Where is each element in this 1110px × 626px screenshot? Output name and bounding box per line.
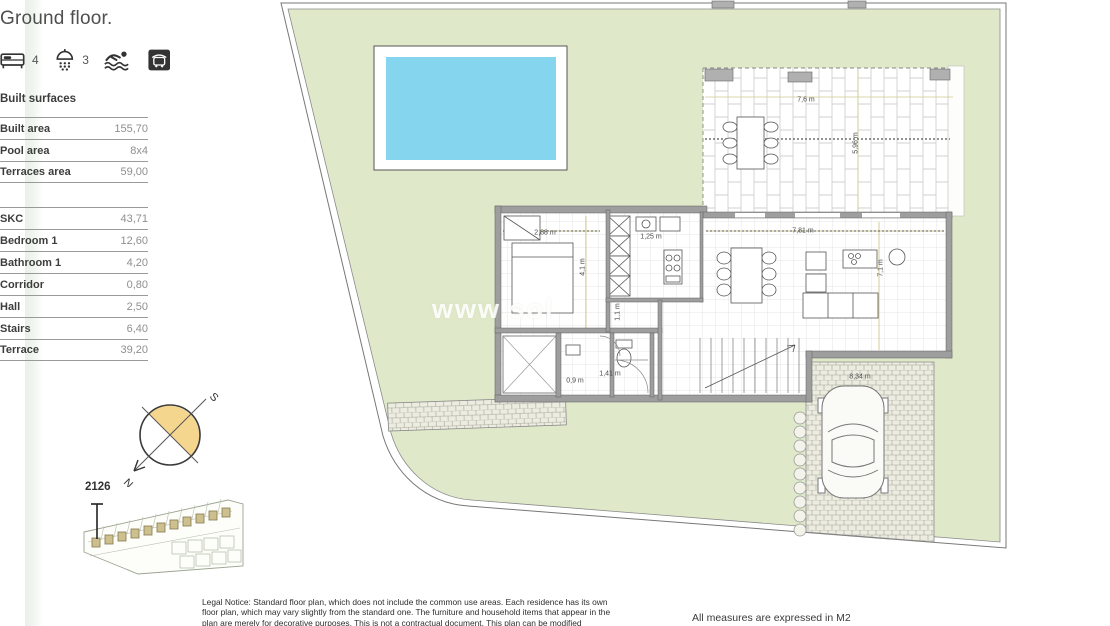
compass-south-label: S: [207, 391, 221, 405]
surface-value: 2,50: [127, 301, 148, 313]
surface-row: Terrace39,20: [0, 339, 148, 361]
windows: [735, 213, 900, 218]
surfaces-table-main: Built area155,70 Pool area8x4 Terraces a…: [0, 117, 148, 183]
driveway: [794, 362, 934, 542]
terrace-dining-set: [723, 117, 778, 169]
built-surfaces-heading: Built surfaces: [0, 93, 76, 105]
surface-value: 155,70: [114, 123, 148, 135]
dim-terrace-depth: 5,96 m: [853, 132, 860, 153]
dim-bedroom-depth: 4,1 m: [580, 258, 587, 276]
watermark: www.sol: [432, 294, 555, 325]
dim-bedroom-width: 2,88 m: [534, 230, 555, 237]
surface-label: Terrace: [0, 344, 39, 356]
patio-lightwell: [503, 336, 556, 393]
surface-label: SKC: [0, 213, 23, 225]
surface-row: Corridor0,80: [0, 273, 148, 295]
dim-path-width: 0,9 m: [566, 378, 584, 385]
page-title: Ground floor.: [0, 8, 112, 30]
wardrobe: [608, 216, 630, 296]
terrace: [703, 66, 964, 216]
surface-value: 12,60: [120, 235, 148, 247]
unit-number: 2126: [85, 481, 111, 493]
car: [818, 386, 888, 498]
pool-water: [386, 57, 556, 160]
surface-row: Terraces area59,00: [0, 161, 148, 183]
garage-icon: [148, 47, 170, 73]
surface-row: Stairs6,40: [0, 317, 148, 339]
surface-value: 0,80: [127, 279, 148, 291]
compass-north-label: N: [121, 477, 135, 487]
measures-note: All measures are expressed in M2: [692, 612, 851, 626]
surface-label: Hall: [0, 301, 20, 313]
stepping-stones: [794, 412, 806, 536]
surface-row: Pool area8x4: [0, 139, 148, 161]
pool-swimmer-icon: [104, 47, 131, 73]
surface-row: Bedroom 112,60: [0, 229, 148, 251]
surface-label: Stairs: [0, 323, 31, 335]
dim-living-depth: 7,1 m: [878, 259, 885, 277]
feature-icons: 4 3: [0, 46, 170, 73]
dim-terrace-width: 7,6 m: [797, 97, 815, 104]
surface-value: 59,00: [120, 166, 148, 178]
dim-kitchen-width: 1,25 m: [640, 234, 661, 241]
compass-rose: S N: [118, 383, 222, 492]
development-sitemap: [80, 494, 252, 599]
surface-label: Bedroom 1: [0, 235, 57, 247]
legal-notice: Legal Notice: Standard floor plan, which…: [202, 597, 626, 626]
surface-value: 43,71: [120, 213, 148, 225]
dining-set: [717, 248, 776, 303]
floorplan-page: 7,6 m 5,96 m 2,88 m 1,25 m 4,1 m 7,81 m …: [0, 0, 1110, 626]
dim-driveway-length: 8,34 m: [849, 374, 870, 381]
surface-label: Pool area: [0, 145, 50, 157]
surface-row: SKC43,71: [0, 207, 148, 229]
surface-value: 39,20: [120, 344, 148, 356]
dim-living-width: 7,81 m: [792, 228, 813, 235]
surface-value: 8x4: [130, 145, 148, 157]
dim-hall-width: 1,41 m: [599, 371, 620, 378]
bathrooms-count: 3: [82, 53, 89, 67]
surface-label: Bathroom 1: [0, 257, 61, 269]
shower-icon: [54, 46, 76, 73]
surfaces-table-rooms: SKC43,71 Bedroom 112,60 Bathroom 14,20 C…: [0, 207, 148, 361]
surface-label: Terraces area: [0, 166, 71, 178]
bed-icon: [0, 49, 25, 71]
dim-hall-depth: 1,1 m: [615, 303, 622, 321]
surface-row: Built area155,70: [0, 117, 148, 139]
surface-row: Hall2,50: [0, 295, 148, 317]
surface-label: Corridor: [0, 279, 44, 291]
surface-row: Bathroom 14,20: [0, 251, 148, 273]
bedrooms-count: 4: [32, 53, 39, 67]
surface-value: 4,20: [127, 257, 148, 269]
surface-label: Built area: [0, 123, 50, 135]
swimming-pool: [374, 46, 567, 170]
surface-value: 6,40: [127, 323, 148, 335]
